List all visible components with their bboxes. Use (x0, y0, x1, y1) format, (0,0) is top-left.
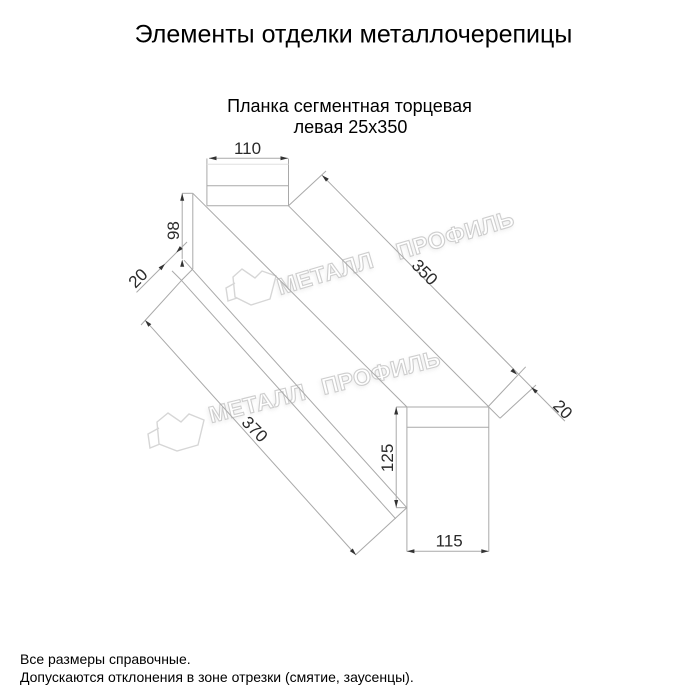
svg-text:Планка сегментная торцевая: Планка сегментная торцевая (227, 96, 472, 116)
svg-text:левая 25х350: левая 25х350 (294, 117, 408, 137)
svg-text:20: 20 (125, 265, 152, 292)
svg-text:125: 125 (378, 444, 397, 472)
svg-text:98: 98 (164, 221, 183, 240)
svg-text:МЕТАЛЛ ПРОФИЛЬ: МЕТАЛЛ ПРОФИЛЬ (206, 345, 443, 428)
svg-text:МЕТАЛЛ ПРОФИЛЬ: МЕТАЛЛ ПРОФИЛЬ (274, 205, 517, 300)
svg-text:110: 110 (234, 139, 261, 158)
svg-text:Допускаются отклонения в зоне: Допускаются отклонения в зоне отрезки (с… (20, 669, 414, 685)
svg-text:Элементы отделки металлочерепи: Элементы отделки металлочерепицы (135, 21, 573, 49)
svg-text:115: 115 (436, 531, 463, 550)
svg-text:Все размеры справочные.: Все размеры справочные. (20, 651, 191, 667)
svg-text:20: 20 (549, 396, 576, 423)
